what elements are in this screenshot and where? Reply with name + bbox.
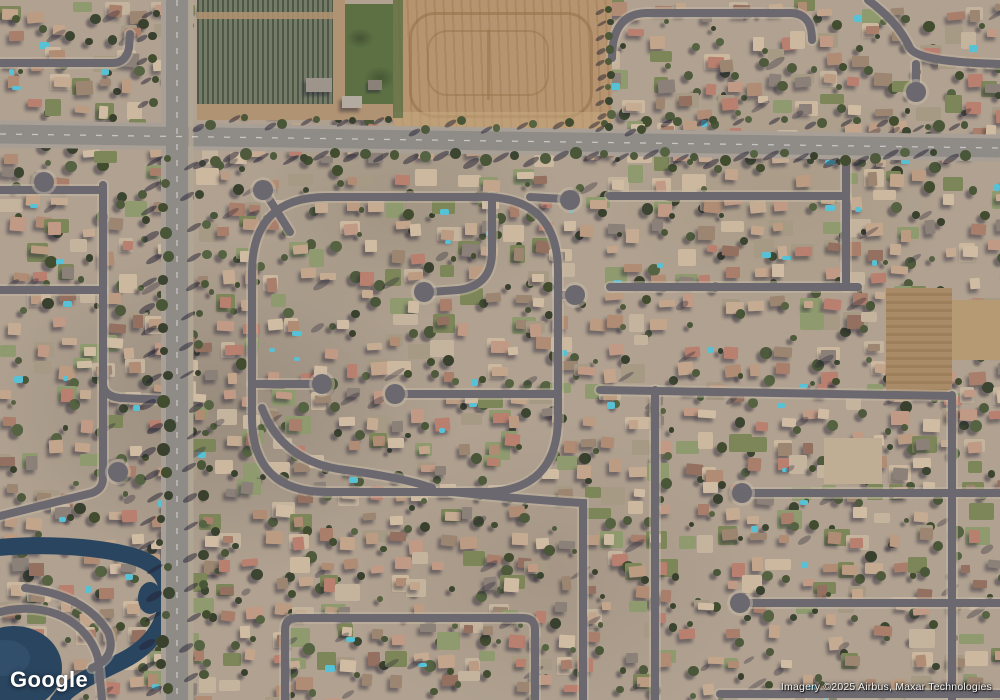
attribution-text: Imagery ©2025 Airbus, Maxar Technologies [781,681,992,693]
roadside-tree [149,98,158,107]
roadside-tree-shadow [181,461,197,474]
roadside-tree-shadow [595,59,606,67]
roadside-tree-shadow [595,34,606,43]
roadside-tree [600,150,608,158]
roadside-tree [194,640,205,651]
roadside-tree-shadow [522,155,541,169]
roadside-tree [493,124,500,131]
roadside-tree [197,460,207,470]
roadside-tree-shadow [143,468,162,482]
roadside-tree-shadow [372,151,390,164]
roadside-tree [152,76,159,83]
roadside-tree [158,323,168,333]
roadside-tree [720,155,731,166]
roadside-tree-shadow [146,154,164,166]
roadside-tree-shadow [282,154,300,167]
roadside-tree [817,118,827,128]
roadside-tree [157,515,165,523]
roadside-tree-shadow [186,251,202,263]
roadside-tree [163,251,174,262]
roadside-tree-shadow [732,117,745,127]
roadside-tree [157,443,170,456]
roadside-tree [960,150,971,161]
roadside-tree [961,121,968,128]
roadside-tree [840,155,851,166]
roadside-tree-shadow [182,552,199,565]
roadside-tree-shadow [145,372,163,385]
roadside-tree [745,116,752,123]
roadside-tree-shadow [336,118,349,128]
roadside-tree-shadow [144,589,163,604]
roadside-tree-shadow [264,121,278,132]
roadside-tree [163,683,174,694]
roadside-tree-shadow [696,117,710,127]
roadside-tree-shadow [408,127,422,138]
roadside-tree [194,340,203,349]
roadside-tree [889,116,899,126]
roadside-tree-shadow [660,118,674,129]
roadside-tree-shadow [179,191,195,203]
roadside-tree [160,347,168,355]
roadside-tree-shadow [140,204,158,217]
roadside-tree-shadow [597,20,607,28]
roadside-tree-shadow [180,310,196,322]
roadside-tree [810,152,818,160]
roadside-tree-shadow [138,445,157,460]
roadside-tree-shadow [768,116,781,126]
roadside-tree-shadow [138,637,157,652]
roadside-tree-shadow [612,151,630,164]
roadside-tree-shadow [183,671,199,684]
roadside-tree [202,220,211,229]
roadside-tree [673,117,682,126]
roadside-tree [204,400,214,410]
roadside-tree [900,148,910,158]
roadside-tree [163,371,172,380]
roadside-tree-shadow [462,156,481,171]
roadside-tree [605,84,611,90]
roadside-tree-shadow [480,125,493,135]
roadside-tree-shadow [342,150,360,164]
roadside-tree-shadow [882,148,900,162]
roadside-tree-shadow [516,121,529,131]
roadside-tree [148,32,156,40]
roadside-tree [870,153,881,164]
roadside-tree [360,149,371,160]
roadside-tree [205,120,216,131]
roadside-tree [240,148,252,160]
roadside-tree [158,203,167,212]
roadside-tree-shadow [432,149,451,163]
roadside-tree-shadow [595,85,605,93]
roadside-tree [277,119,287,129]
roadside-tree-shadow [624,127,638,138]
roadside-tree [709,116,717,124]
roadside-tree [164,563,172,571]
roadside-tree-shadow [192,157,211,171]
roadside-tree [349,117,356,124]
roadside-tree-shadow [180,369,196,380]
roadside-tree [163,587,175,599]
roadside-tree [637,125,646,134]
roadside-tree [540,153,551,164]
roadside-tree [161,467,172,478]
roadside-tree [630,152,638,160]
roadside-tree-shadow [582,150,600,163]
roadside-tree-shadow [139,515,157,528]
roadside-tree-shadow [552,149,571,164]
roadside-tree-shadow [912,148,930,160]
satellite-map-canvas[interactable]: Google Imagery ©2025 Airbus, Maxar Techn… [0,0,1000,700]
roadside-tree [607,110,616,119]
roadside-tree [607,19,613,25]
roadside-tree-shadow [222,150,241,165]
roadside-tree [148,54,157,63]
roadside-tree [210,156,221,167]
roadside-tree [781,116,788,123]
roadside-tree [605,123,613,131]
roadside-tree-shadow [672,152,690,165]
roadside-tree-shadow [552,120,566,131]
roadside-tree-shadow [178,341,194,353]
roadside-tree-shadow [146,491,164,504]
roadside-tree-shadow [840,118,853,128]
roadside-tree [162,611,170,619]
roadside-tree-shadow [948,122,961,132]
roadside-tree-shadow [596,73,607,82]
roadside-tree-shadow [182,492,199,505]
roadside-tree [164,155,171,162]
roadside-tree-shadow [136,34,149,44]
roadside-tree [690,153,698,161]
roadside-tree-shadow [402,152,421,166]
roadside-tree-shadow [141,11,153,20]
roadside-tree [565,118,574,127]
roadside-tree [195,190,204,199]
roadside-tree [313,116,320,123]
roadside-tree-shadow [135,56,148,66]
roadside-tree-shadow [185,281,201,293]
roadside-tree [385,116,392,123]
roadside-tree [160,227,172,239]
roadside-tree [457,116,466,125]
roadside-tree [196,310,203,317]
roadside-tree-shadow [732,150,750,163]
roadside-tree-shadow [312,149,330,163]
roadside-tree [605,97,613,105]
roadside-tree-shadow [138,301,157,316]
roadside-tree [390,150,399,159]
roadside-tree [156,635,169,648]
roadside-tree-shadow [595,47,606,56]
roadside-tree [199,520,207,528]
roadside-tree [201,280,209,288]
roadside-tree [202,250,211,259]
roadside-tree [930,149,937,156]
roadside-tree [780,149,789,158]
roadside-tree [529,120,537,128]
roadside-tree-shadow [136,100,149,110]
roadside-tree [156,299,168,311]
roadside-tree [270,152,277,159]
roadside-tree [164,491,173,500]
roadside-tree-shadow [183,520,199,532]
roadside-tree-shadow [642,148,660,162]
roadside-tree-shadow [138,660,156,674]
roadside-tree [925,124,931,130]
roadside-tree [480,154,492,166]
roadside-tree [450,148,461,159]
roadside-tree-shadow [762,149,780,162]
roadside-tree [570,147,582,159]
roadside-tree [161,179,170,188]
roadside-tree [202,610,211,619]
roadside-tree [420,151,431,162]
roadside-tree [199,670,208,679]
roadside-tree-shadow [942,152,961,166]
roadside-tree [153,10,160,17]
roadside-tree-shadow [140,324,158,338]
roadside-tree-shadow [183,581,199,593]
roadside-tree-shadow [852,154,870,168]
roadside-tree-shadow [595,99,606,108]
roadside-tree-shadow [702,157,721,171]
roadside-tree-shadow [822,156,841,170]
roadside-tree [202,430,208,436]
roadside-tree-shadow [178,642,195,655]
roadside-tree [198,490,209,501]
roadside-tree [605,32,613,40]
roadside-tree [606,45,615,54]
google-logo[interactable]: Google [10,667,88,693]
roadside-tree-shadow [142,229,161,244]
roadside-tree [421,125,430,134]
roadside-tree-shadow [300,117,313,127]
roadside-tree-shadow [492,151,510,164]
roadside-trees-layer [0,0,1000,700]
roadside-tree-shadow [804,120,818,131]
roadside-tree-shadow [595,7,606,15]
roadside-tree [750,150,758,158]
roadside-tree [330,148,340,158]
roadside-tree-shadow [444,118,458,129]
roadside-tree [853,117,861,125]
roadside-tree-shadow [188,402,205,415]
roadside-tree [241,114,248,121]
roadside-tree-shadow [144,684,163,698]
roadside-tree-shadow [372,116,385,126]
roadside-tree-shadow [186,221,202,233]
roadside-tree [510,151,519,160]
roadside-tree-shadow [142,347,160,360]
roadside-tree [300,154,308,162]
roadside-tree-shadow [146,563,164,576]
roadside-tree [164,419,177,432]
roadside-tree-shadow [191,122,205,134]
roadside-tree [199,580,208,589]
roadside-tree-shadow [143,179,161,192]
roadside-tree-shadow [876,118,890,129]
roadside-tree-shadow [912,124,925,133]
roadside-tree-shadow [138,538,156,550]
roadside-tree [156,659,166,669]
roadside-tree-shadow [140,77,152,86]
roadside-tree [607,71,615,79]
roadside-tree-shadow [792,152,810,165]
roadside-tree-shadow [186,611,202,623]
roadside-tree-shadow [252,152,270,165]
roadside-tree [195,370,201,376]
roadside-tree [605,58,612,65]
roadside-tree [198,550,208,560]
roadside-tree-shadow [145,252,164,266]
roadside-tree-shadow [145,421,164,436]
roadside-tree-shadow [228,114,241,124]
roadside-tree [605,6,612,13]
roadside-tree [660,147,670,157]
roadside-tree [156,539,163,546]
roadside-tree-shadow [145,611,163,624]
roadside-tree-shadow [186,429,202,440]
roadside-tree-shadow [140,276,158,290]
roadside-tree [158,275,168,285]
roadside-tree-shadow [138,397,157,412]
roadside-tree [157,395,170,408]
